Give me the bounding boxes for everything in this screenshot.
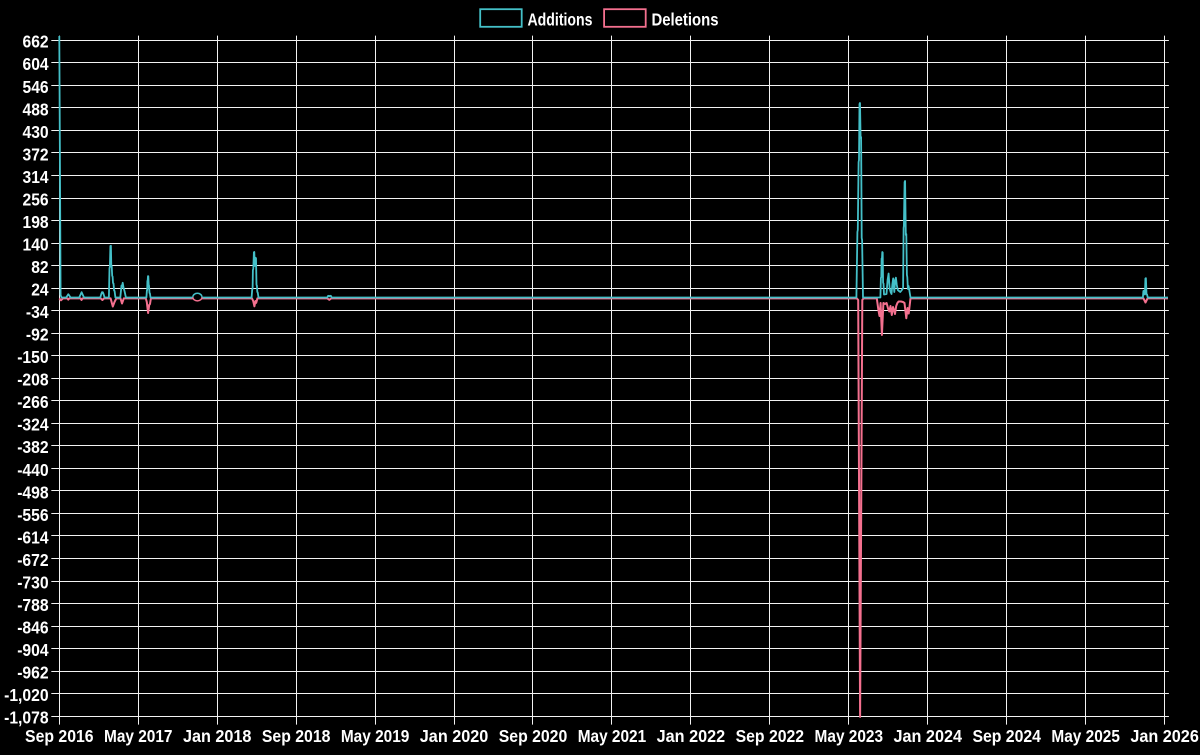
svg-text:-788: -788 [17, 595, 49, 615]
svg-text:-382: -382 [17, 437, 49, 457]
svg-text:-266: -266 [17, 392, 49, 412]
svg-text:-962: -962 [17, 663, 49, 683]
svg-text:Sep 2016: Sep 2016 [25, 726, 94, 746]
svg-text:-34: -34 [26, 302, 49, 322]
svg-text:24: 24 [31, 280, 49, 300]
svg-text:662: 662 [23, 32, 49, 52]
svg-text:604: 604 [23, 54, 49, 74]
svg-text:Jan 2020: Jan 2020 [420, 726, 489, 746]
svg-text:May 2017: May 2017 [104, 726, 173, 746]
svg-text:Jan 2024: Jan 2024 [894, 726, 963, 746]
svg-text:May 2025: May 2025 [1051, 726, 1120, 746]
svg-text:Jan 2022: Jan 2022 [657, 726, 726, 746]
svg-text:-730: -730 [17, 572, 49, 592]
svg-text:-1,078: -1,078 [4, 708, 49, 728]
svg-text:-92: -92 [26, 325, 49, 345]
svg-text:Sep 2022: Sep 2022 [736, 726, 805, 746]
svg-text:Sep 2024: Sep 2024 [972, 726, 1041, 746]
svg-text:-672: -672 [17, 550, 49, 570]
svg-text:-150: -150 [17, 347, 49, 367]
svg-text:May 2023: May 2023 [815, 726, 884, 746]
svg-text:Deletions: Deletions [652, 10, 719, 30]
svg-text:Jan 2018: Jan 2018 [183, 726, 252, 746]
svg-text:488: 488 [23, 99, 49, 119]
svg-text:May 2019: May 2019 [341, 726, 410, 746]
svg-text:-1,020: -1,020 [4, 685, 49, 705]
svg-text:82: 82 [31, 257, 49, 277]
svg-text:May 2021: May 2021 [578, 726, 647, 746]
svg-text:430: 430 [23, 122, 49, 142]
svg-text:-440: -440 [17, 460, 49, 480]
svg-text:Sep 2018: Sep 2018 [262, 726, 331, 746]
svg-text:-208: -208 [17, 370, 49, 390]
svg-text:Sep 2020: Sep 2020 [499, 726, 568, 746]
svg-text:140: 140 [23, 234, 49, 254]
svg-text:314: 314 [23, 167, 49, 187]
svg-text:-324: -324 [17, 415, 49, 435]
svg-text:Additions: Additions [528, 10, 593, 30]
svg-text:-846: -846 [17, 617, 49, 637]
svg-text:-614: -614 [17, 527, 49, 547]
svg-text:546: 546 [23, 77, 49, 97]
svg-text:-556: -556 [17, 505, 49, 525]
svg-text:-498: -498 [17, 482, 49, 502]
svg-text:372: 372 [23, 144, 49, 164]
svg-text:198: 198 [23, 212, 49, 232]
svg-text:256: 256 [23, 189, 49, 209]
svg-text:-904: -904 [17, 640, 49, 660]
svg-text:Jan 2026: Jan 2026 [1130, 726, 1199, 746]
